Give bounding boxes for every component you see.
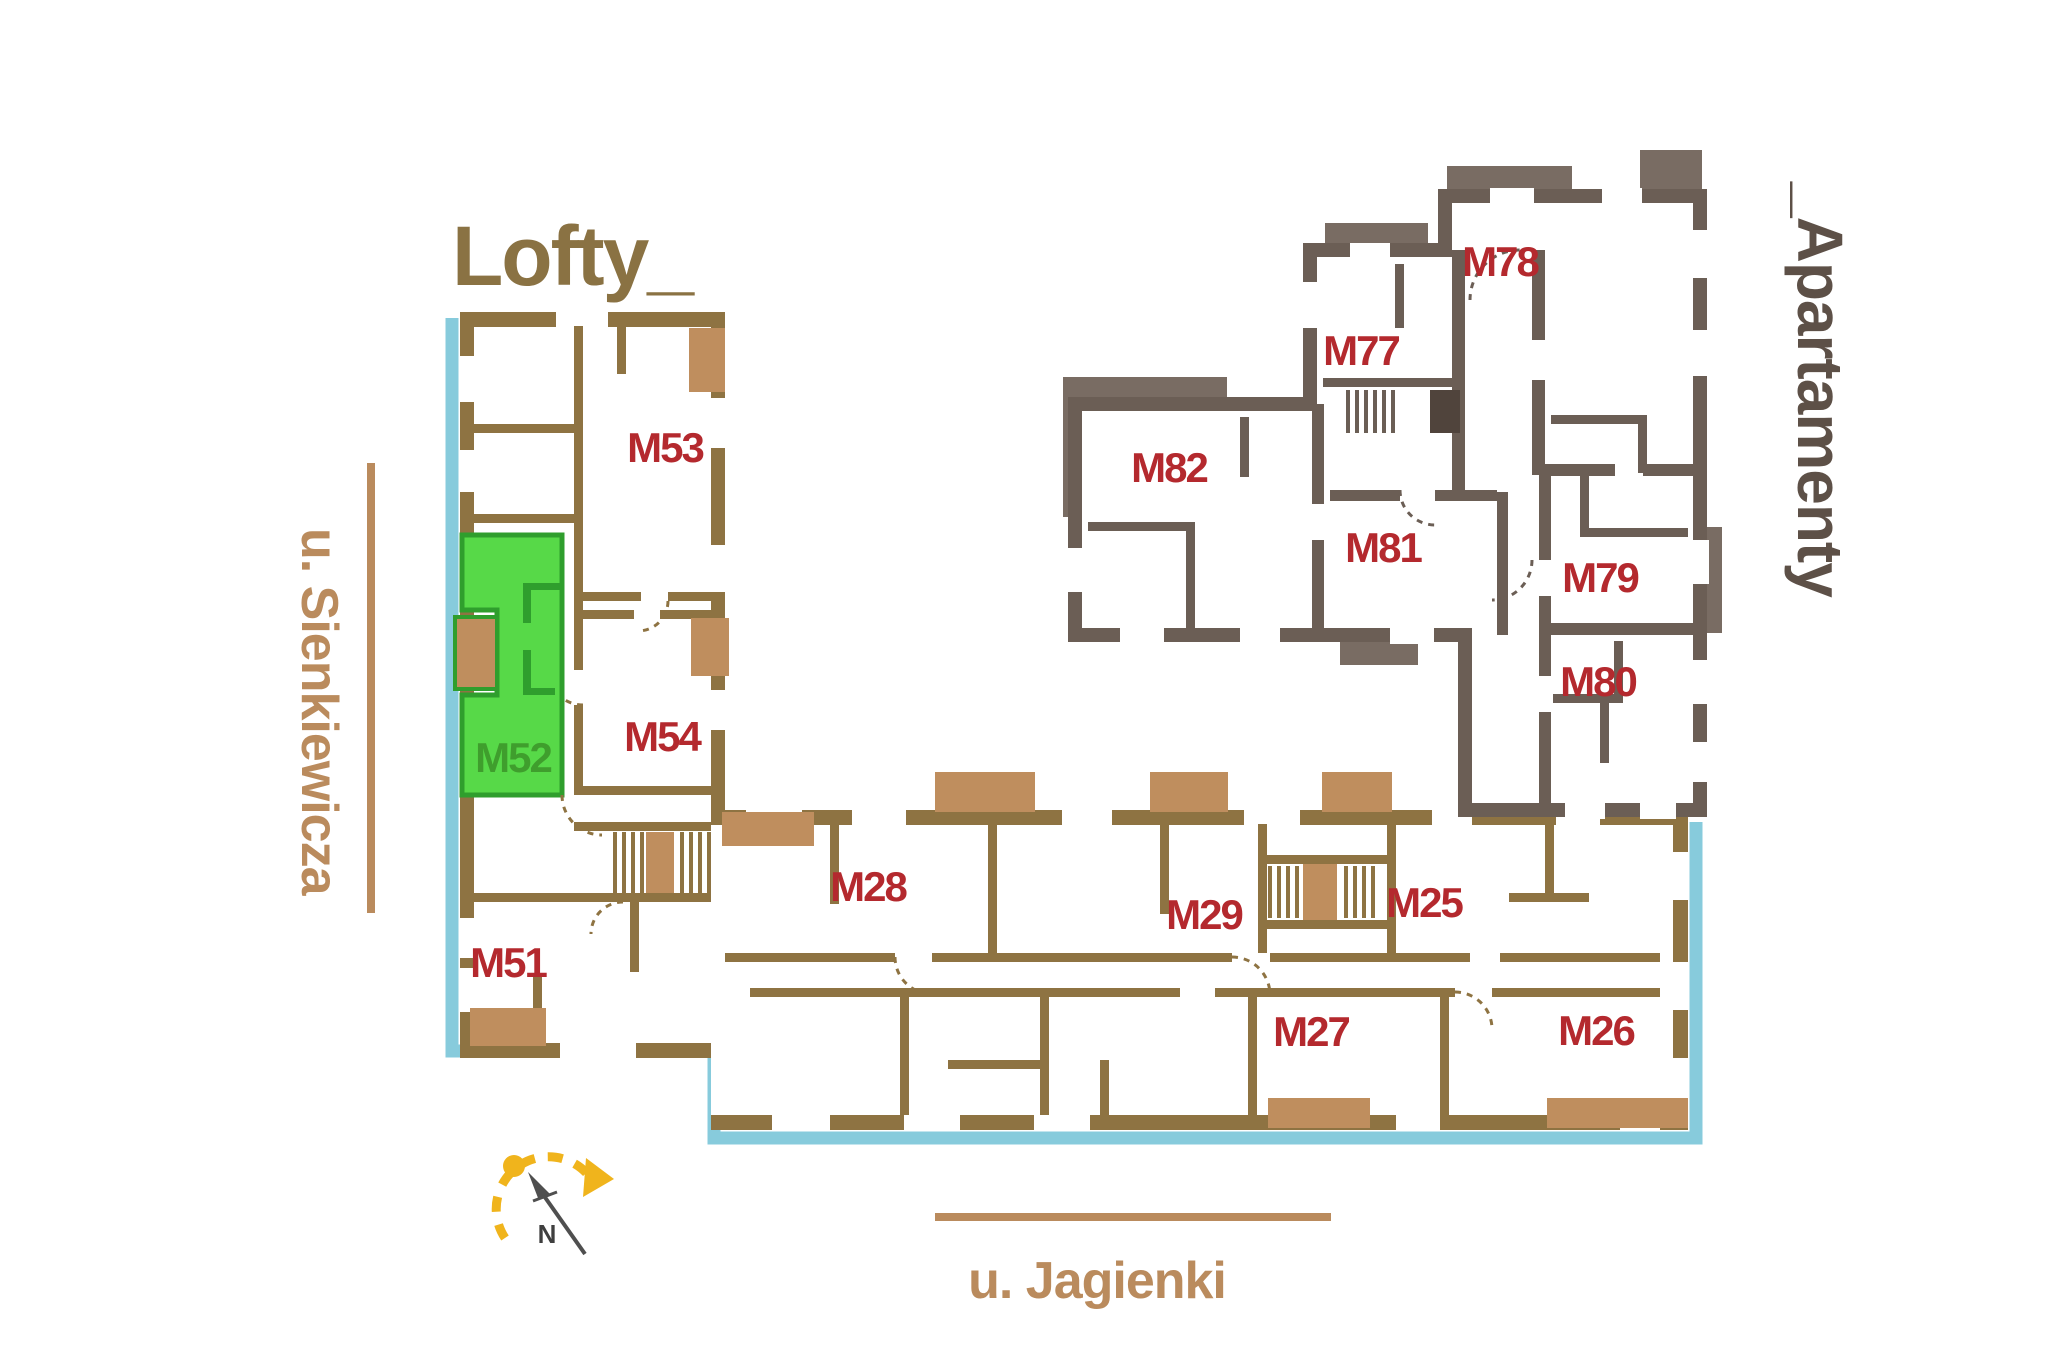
street-line-bottom xyxy=(935,1213,1331,1221)
street-label-bottom: u. Jagienki xyxy=(968,1252,1226,1310)
lofty-elevator xyxy=(646,832,674,893)
street-sienkiewicza: u. Sienkiewicza xyxy=(290,463,375,913)
street-label-left: u. Sienkiewicza xyxy=(290,528,348,897)
apartamenty-elevator xyxy=(1430,390,1460,433)
side-building-label: _Apartamenty xyxy=(1784,181,1856,598)
apartment-label-m28[interactable]: M28 xyxy=(830,863,907,910)
apartment-label-m81[interactable]: M81 xyxy=(1345,524,1422,571)
apartment-label-m80[interactable]: M80 xyxy=(1560,658,1636,705)
apartment-label-m51[interactable]: M51 xyxy=(470,939,547,986)
apartment-label-m82[interactable]: M82 xyxy=(1131,444,1207,491)
floorplan-page: M52 xyxy=(0,0,2048,1365)
apartment-label-m54[interactable]: M54 xyxy=(624,713,702,760)
north-needle: N xyxy=(528,1172,585,1254)
apartment-label-m53[interactable]: M53 xyxy=(627,424,703,471)
apartment-label-m52[interactable]: M52 xyxy=(475,734,551,781)
compass: N xyxy=(496,1155,614,1254)
street-line-left xyxy=(367,463,375,913)
apartment-label-m78[interactable]: M78 xyxy=(1462,238,1539,285)
compass-arrowhead xyxy=(583,1158,614,1197)
m52-balcony xyxy=(455,617,497,689)
street-jagienki: u. Jagienki xyxy=(935,1213,1331,1310)
apartment-label-m79[interactable]: M79 xyxy=(1562,554,1638,601)
building-title: Lofty_ xyxy=(452,209,695,303)
apartment-label-m27[interactable]: M27 xyxy=(1273,1008,1349,1055)
wing-jagienki xyxy=(711,772,1689,1131)
north-label: N xyxy=(538,1219,557,1249)
apartment-label-m25[interactable]: M25 xyxy=(1386,879,1463,926)
apartment-label-m29[interactable]: M29 xyxy=(1166,891,1242,938)
apartment-label-m77[interactable]: M77 xyxy=(1323,327,1399,374)
apartment-label-m26[interactable]: M26 xyxy=(1558,1007,1634,1054)
compass-dot xyxy=(503,1155,525,1177)
wing-elevator xyxy=(1303,864,1337,920)
